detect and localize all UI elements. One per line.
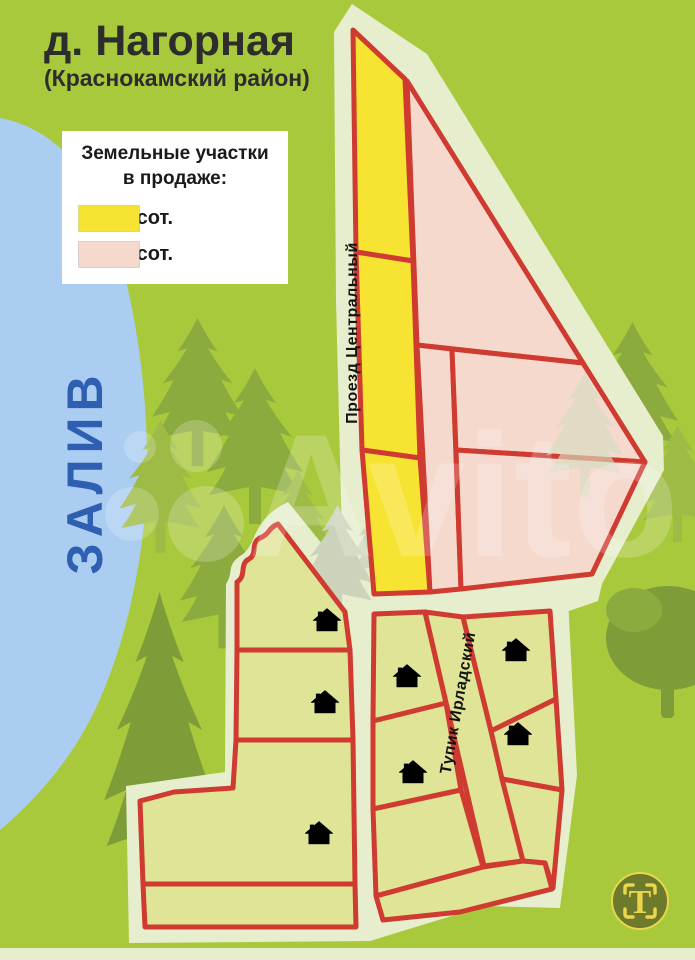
legend-title-line1: Земельные участки	[81, 143, 268, 164]
bay-label: ЗАЛИВ	[57, 369, 113, 574]
legend-swatch-yellow	[78, 205, 140, 232]
land-plot-map-image: Avito Проезд Центральный Тупик Ирладский…	[0, 0, 695, 960]
parcel-khaki	[236, 650, 353, 740]
page-title: д. Нагорная	[44, 18, 310, 65]
legend-title: Земельные участки в продаже:	[62, 142, 288, 191]
parcel-khaki	[143, 884, 356, 927]
page-subtitle: (Краснокамский район)	[44, 65, 310, 93]
legend-title-line2: в продаже:	[123, 168, 227, 189]
legend-item-pink: - 9,3 сот.	[78, 241, 173, 268]
watermark-dot	[168, 486, 244, 562]
legend-box: Земельные участки в продаже: - 6,3 сот. …	[62, 131, 288, 284]
watermark-brand-text: Avito	[248, 399, 679, 594]
watermark-dot	[124, 431, 156, 463]
bottom-border-strip	[0, 948, 695, 960]
watermark-dot	[105, 487, 159, 541]
t-badge-logo: T	[612, 873, 668, 929]
road-central-label: Проезд Центральный	[344, 242, 361, 424]
legend-item-yellow: - 6,3 сот.	[78, 205, 173, 232]
map-title-block: д. Нагорная (Краснокамский район)	[44, 18, 310, 93]
legend-swatch-pink	[78, 241, 140, 268]
watermark-dot	[170, 420, 222, 472]
